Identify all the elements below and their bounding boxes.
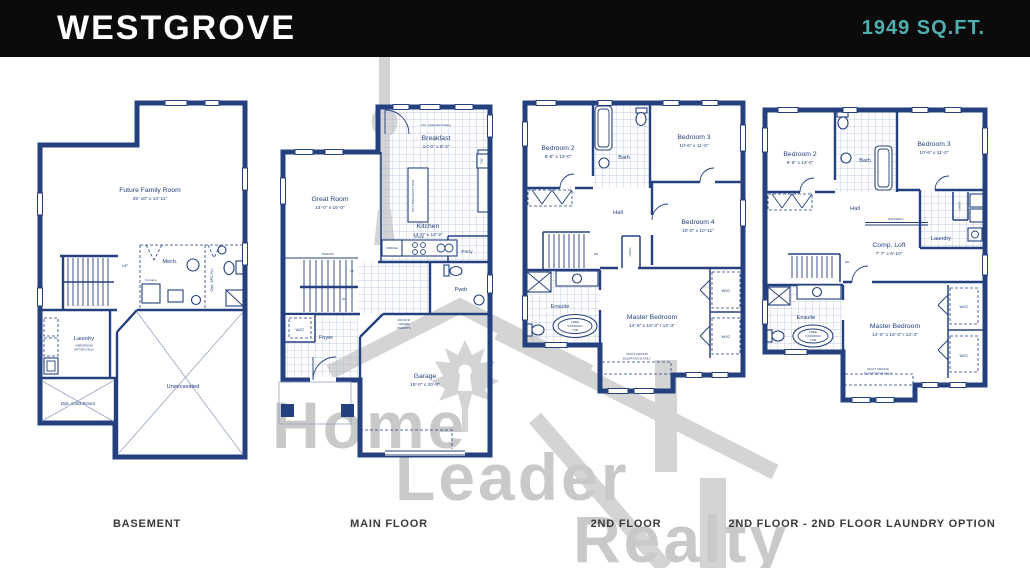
caption-second-floor: 2ND FLOOR — [591, 518, 662, 530]
main-label-island: OPT. BREAKFAST BAR — [411, 179, 415, 212]
sf-label-master: Master Bedroom — [627, 314, 678, 321]
lo-label-vault1: VAULT CEILING — [867, 367, 890, 371]
basement-laundry-fixtures — [44, 318, 58, 374]
main-label-garage-dims: 18'-0" x 20'-0" — [410, 382, 440, 388]
main-label-pantry: Pntry — [461, 249, 473, 255]
lo-label-dn: DN — [845, 260, 849, 264]
watermark-word-realty: Realty — [573, 502, 789, 568]
caption-main-floor: MAIN FLOOR — [350, 518, 428, 530]
main-label-great-room-dims: 14'-0" x 15'-0" — [315, 205, 345, 211]
main-label-great-room: Great Room — [311, 196, 348, 203]
sf-label-bedroom3: Bedroom 3 — [677, 134, 710, 141]
main-label-railing: RAILING — [322, 252, 335, 256]
basement-label-opt-3pc: Opt. 3PC R-I — [209, 269, 214, 292]
sf-label-wic2: W/IC — [722, 334, 731, 339]
lo-label-linen: LINEN — [958, 202, 962, 211]
basement-label-cold-room: Opt. Cold Room — [61, 401, 95, 407]
basement-label-mech: Mech. — [162, 259, 178, 265]
caption-laundry-option: 2ND FLOOR - 2ND FLOOR LAUNDRY OPTION — [728, 518, 995, 530]
plan-captions: BASEMENT MAIN FLOOR 2ND FLOOR 2ND FLOOR … — [113, 518, 996, 530]
sf-label-bedroom4: Bedroom 4 — [681, 219, 714, 226]
sf-label-linen: LINEN — [628, 248, 632, 257]
main-label-dw: DW — [480, 158, 484, 163]
lo-label-bedroom3: Bedroom 3 — [917, 141, 950, 148]
basement-label-unexcavated: Unexcavated — [167, 384, 200, 390]
lo-label-comp-loft-dims: 7'-7" x 6'-10" — [876, 251, 903, 257]
caption-basement: BASEMENT — [113, 518, 181, 530]
lo-label-laundry: Laundry — [931, 236, 951, 242]
sf-label-ensuite: Ensuite — [551, 304, 570, 310]
sf-label-bedroom4-dims: 10'-0" x 10'-11" — [682, 228, 714, 234]
basement-label-family-room-dims: 25'-10" x 14'-11" — [133, 196, 168, 202]
main-label-breakfast: Breakfast — [422, 135, 451, 142]
basement-label-family-room: Future Family Room — [119, 187, 181, 194]
lo-label-ensuite: Ensuite — [797, 315, 816, 321]
main-label-up: UP — [350, 269, 354, 273]
main-label-garage: Garage — [414, 373, 437, 380]
main-label-kitchen: Kitchen — [417, 223, 440, 230]
basement-stairs — [64, 258, 114, 306]
main-label-dn: DN — [342, 297, 346, 301]
floorplan-sheet: Home Leader Realty — [0, 0, 1030, 568]
sf-label-hall: Hall — [613, 210, 623, 216]
main-label-powder: Pwdr — [455, 287, 468, 293]
lo-label-master: Master Bedroom — [870, 323, 921, 330]
flyer-canvas: WESTGROVE 1949 SQ.FT. — [0, 0, 1030, 568]
sf-label-bedroom3-dims: 10'-6" x 11'-0" — [679, 143, 708, 149]
lo-label-bedroom2-dims: 9'-5" x 13'-0" — [787, 160, 814, 166]
basement-label-furnace: Furnace — [145, 278, 156, 282]
lo-label-comp-loft: Comp. Loft — [872, 242, 905, 249]
sf-label-bath: Bath — [618, 155, 630, 161]
basement-label-up: UP — [122, 263, 128, 268]
basement-windows — [38, 101, 248, 307]
basement-mech-room — [140, 245, 243, 308]
sf-label-vault2: ELEVATION B ONLY — [623, 357, 651, 361]
laundry-option-plan: Bedroom 2 9'-5" x 13'-0" Bath Bedroom 3 … — [763, 108, 988, 403]
sf-label-bedroom2: Bedroom 2 — [541, 145, 574, 152]
second-floor-stairs — [549, 234, 584, 268]
sf-label-vault1: VAULT CEILING — [626, 352, 649, 356]
sf-label-master-dims: 14'-6" x 16'-3" / 14'-3" — [629, 323, 675, 329]
lo-label-master-dims: 14'-6" x 16'-3" / 14'-3" — [872, 332, 918, 338]
basement-plan: Future Family Room 25'-10" x 14'-11" Mec… — [38, 101, 248, 458]
lo-label-bath: Bath — [859, 158, 871, 164]
basement-label-laundry: Laundry — [74, 336, 94, 342]
main-label-wic: W/IC — [296, 327, 305, 332]
lo-label-hall: Hall — [850, 206, 860, 212]
lo-label-bedroom2: Bedroom 2 — [783, 151, 816, 158]
main-label-fridge: FRIDGE — [386, 246, 397, 250]
lo-stairs — [792, 256, 832, 278]
sf-label-bedroom2-dims: 9'-5" x 13'-0" — [545, 154, 572, 160]
main-floor-powder-fixtures — [444, 265, 484, 305]
sf-label-wic1: W/IC — [722, 288, 731, 293]
lo-label-halfwall: HALFWALL — [888, 217, 904, 221]
sf-label-dn: DN — [594, 252, 598, 256]
main-label-breakfast-dims: 14'-0" x 9'-3" — [423, 144, 450, 150]
main-label-cathedral: Opt. Cathedral Ceiling — [421, 123, 451, 127]
lo-label-bedroom3-dims: 10'-6" x 11'-0" — [919, 150, 948, 156]
lo-label-tub3: TUB — [810, 338, 816, 342]
lo-label-wic1: W/IC — [960, 304, 969, 309]
lo-laundry-fixtures — [968, 194, 983, 241]
basement-label-laundry-note2: OPTION ONLY — [74, 348, 94, 352]
main-label-stove: STOVE — [414, 235, 424, 239]
lo-label-vault2: ELEVATION B ONLY — [864, 372, 892, 376]
basement-hatching — [42, 312, 243, 455]
main-label-door-note3: PERMITS — [397, 326, 410, 330]
second-floor-tiles — [525, 103, 650, 345]
lo-label-wic2: W/IC — [960, 353, 969, 358]
main-label-foyer: Foyer — [319, 335, 333, 341]
sf-label-tub3: TUB — [572, 328, 578, 332]
